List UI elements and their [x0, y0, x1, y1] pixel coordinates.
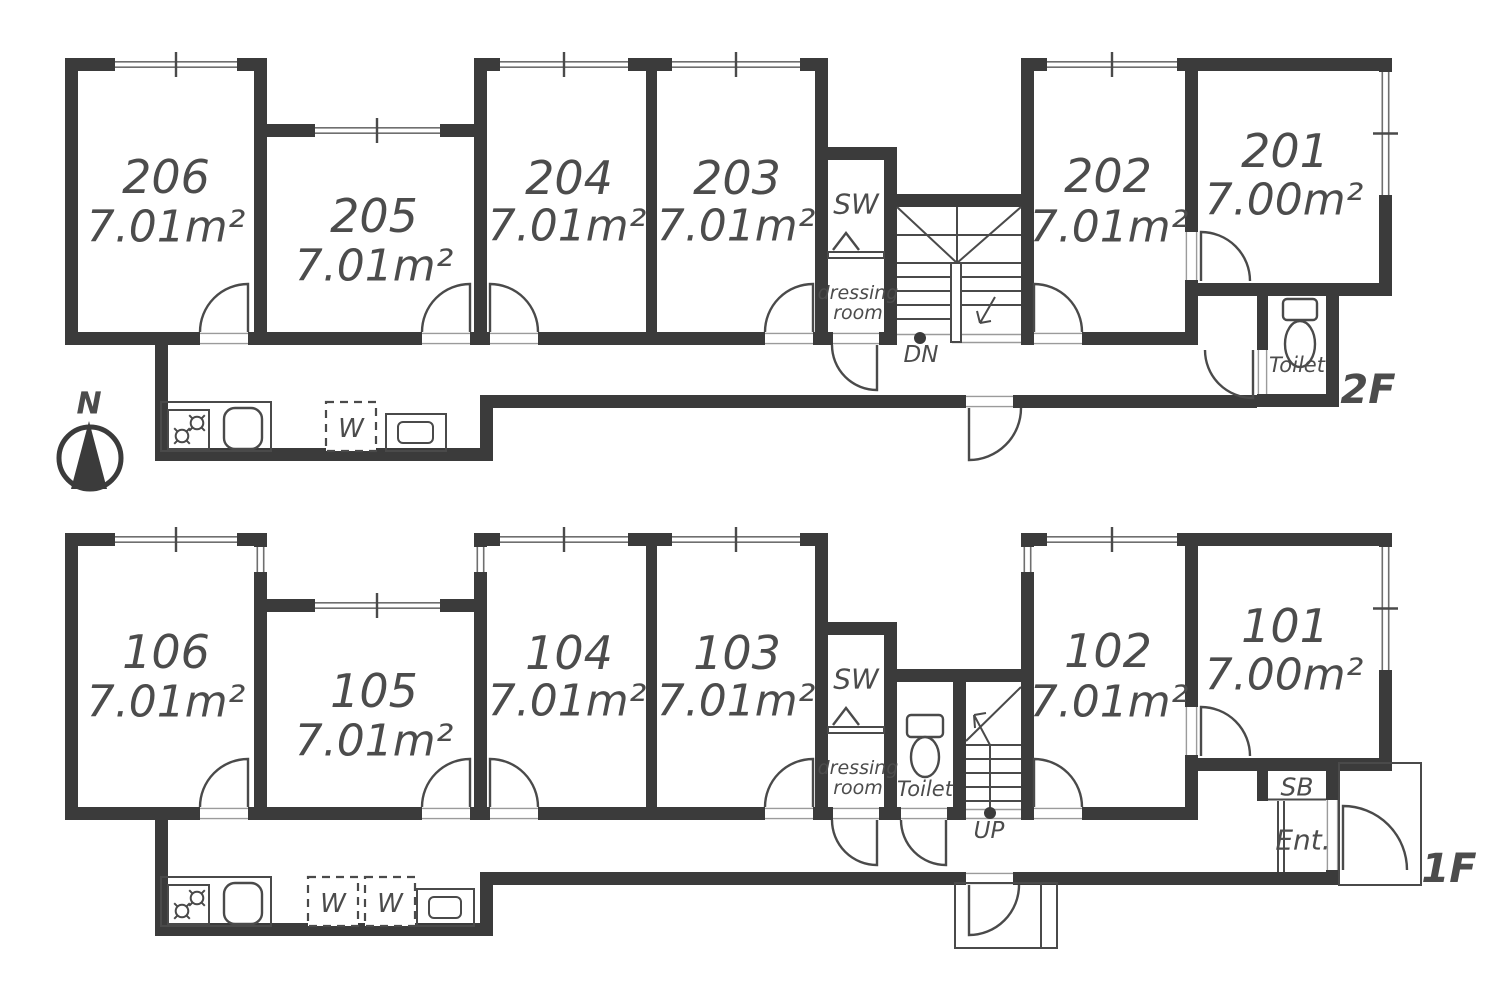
room-105-area: 7.01m²: [295, 716, 453, 767]
kitchen-1f: [161, 877, 474, 926]
room-103-number: 103: [693, 626, 781, 680]
toilet-label-2f: Toilet: [1269, 353, 1326, 377]
room-106-area: 7.01m²: [87, 677, 245, 728]
room-102-area: 7.01m²: [1030, 677, 1188, 728]
appliance-icon: [417, 889, 474, 926]
floor-label-1f: 1F: [1421, 846, 1476, 892]
floor-plan-1f: 106 7.01m² 105 7.01m² 104 7.01m² 103 7.0…: [65, 527, 1477, 948]
staircase-1f: [966, 687, 1021, 819]
kitchen-2f: [161, 402, 446, 451]
sink-icon: [224, 883, 262, 924]
toilet-label-1f: Toilet: [897, 777, 954, 801]
room-206-number: 206: [122, 150, 210, 204]
sink-icon: [224, 408, 262, 449]
room-104-number: 104: [525, 626, 613, 680]
room-202-number: 202: [1064, 149, 1152, 203]
toilet-icon-1f: [907, 715, 943, 777]
entrance-label: Ent.: [1275, 824, 1330, 857]
dressing-room-label-1f-line2: room: [833, 777, 883, 799]
room-201-number: 201: [1241, 124, 1329, 178]
washer-label-1f-a: W: [320, 889, 347, 919]
room-204-number: 204: [525, 151, 613, 205]
floor-label-2f: 2F: [1340, 367, 1395, 413]
room-206-area: 7.01m²: [87, 202, 245, 253]
stair-up-label: UP: [974, 818, 1005, 844]
room-104-area: 7.01m²: [488, 676, 646, 727]
appliance-icon: [386, 414, 446, 451]
stair-dn-label: DN: [904, 342, 939, 368]
compass-north-label: N: [76, 387, 101, 422]
closet-shelf-icon: [833, 708, 859, 725]
dressing-room-label-2f-line1: dressing: [818, 282, 899, 304]
room-106-number: 106: [122, 625, 210, 679]
washer-label-2f: W: [338, 414, 365, 444]
room-101-area: 7.00m²: [1205, 650, 1363, 701]
room-101-number: 101: [1241, 599, 1329, 653]
room-105-number: 105: [330, 664, 418, 718]
sw-closet-label-1f: SW: [833, 663, 880, 696]
room-103-area: 7.01m²: [657, 676, 815, 727]
sw-closet-2f: [828, 233, 884, 258]
room-201-area: 7.00m²: [1205, 175, 1363, 226]
floor-plan-drawing: 206 7.01m² 205 7.01m² 204 7.01m² 203 7.0…: [0, 0, 1500, 1000]
floor-plan-page: 206 7.01m² 205 7.01m² 204 7.01m² 203 7.0…: [0, 0, 1500, 1000]
room-205-area: 7.01m²: [295, 241, 453, 292]
room-203-area: 7.01m²: [657, 201, 815, 252]
room-203-number: 203: [693, 151, 781, 205]
dressing-room-label-2f-line2: room: [833, 302, 883, 324]
washer-label-1f-b: W: [377, 889, 404, 919]
room-204-area: 7.01m²: [488, 201, 646, 252]
staircase-2f: [897, 207, 1021, 344]
closet-shelf-icon: [833, 233, 859, 250]
entrance-porch-side: [1339, 763, 1421, 885]
room-102-number: 102: [1064, 624, 1152, 678]
shoe-box-label: SB: [1280, 773, 1313, 802]
room-205-number: 205: [330, 189, 418, 243]
floor-plan-2f: 206 7.01m² 205 7.01m² 204 7.01m² 203 7.0…: [65, 52, 1398, 461]
compass-icon: N: [59, 387, 121, 490]
sw-closet-label-2f: SW: [833, 188, 880, 221]
dressing-room-label-1f-line1: dressing: [818, 757, 899, 779]
room-202-area: 7.01m²: [1030, 202, 1188, 253]
sw-closet-1f: [828, 708, 884, 733]
